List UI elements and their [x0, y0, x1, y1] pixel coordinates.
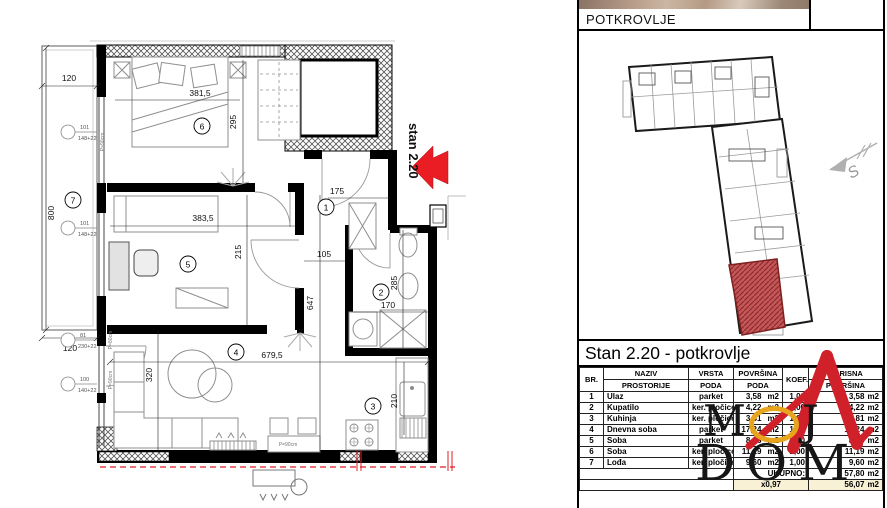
reduced-total-row: x0,97 56,07m2: [580, 480, 883, 491]
table-row: 3 Kuhinja ker. pločice 3,81m2 1,00 3,81m…: [580, 414, 883, 425]
floor-title: POTKROVLJE: [579, 9, 809, 29]
col-header-vrsta2: PODA: [689, 380, 734, 392]
room-number-7: 7: [71, 196, 76, 206]
dim-room5-width: 383,5: [192, 213, 214, 223]
table-header-row2: PROSTORIJE PODA PODA POVRŠINA: [580, 380, 883, 392]
cell-korisna: 9,60m2: [809, 458, 883, 469]
dim-bedroom-depth: 295: [228, 115, 238, 129]
dim-living-depth: 320: [144, 368, 154, 382]
cell-korisna: 17,24m2: [809, 425, 883, 436]
table-row: 1 Ulaz parket 3,58m2 1,00 3,58m2: [580, 392, 883, 403]
cell-povrsina: 17,24m2: [734, 425, 783, 436]
total-row: UKUPNO: 57,80m2: [580, 469, 883, 480]
cell-korisna: 4,22m2: [809, 403, 883, 414]
room-number-1: 1: [324, 203, 329, 213]
dim-entry-width: 175: [330, 186, 344, 196]
total-label: UKUPNO:: [734, 469, 809, 480]
building-outline: [623, 57, 812, 335]
dim-loggia-width-top: 120: [62, 73, 76, 83]
window-tag-size: 148+22: [78, 232, 97, 238]
table-row: 5 Soba parket 8,16m2 1,00 8,16m2: [580, 436, 883, 447]
col-header-naziv: NAZIV: [604, 368, 689, 380]
reduced-value: 56,07m2: [809, 480, 883, 491]
dim-hall-depth: 215: [233, 245, 243, 259]
cell-povrsina: 11,19m2: [734, 447, 783, 458]
key-plan-svg: S: [579, 31, 883, 339]
room-number-4: 4: [234, 348, 239, 358]
window-tag-code: 81: [80, 333, 86, 339]
building-key-plan: S: [579, 31, 883, 341]
cell-vrsta: ker. pločice: [689, 447, 734, 458]
door-label: P=90cm: [108, 371, 114, 389]
building-photo: [579, 0, 809, 9]
col-header-br: BR.: [580, 368, 604, 392]
cell-korisna: 8,16m2: [809, 436, 883, 447]
cell-vrsta: ker. pločice: [689, 403, 734, 414]
highlighted-unit: [729, 259, 785, 335]
window-tags: 101 148+22 101 148+22 81 230+22 100 140+…: [61, 125, 97, 394]
col-header-povrsina: POVRŠINA: [734, 368, 783, 380]
window-tag-code: 101: [80, 221, 89, 227]
cell-koef: 1,00: [783, 403, 809, 414]
door-label: P=90cm: [279, 442, 297, 448]
cell-vrsta: ker. pločice: [689, 414, 734, 425]
cell-povrsina: 3,81m2: [734, 414, 783, 425]
reduction-label: x0,97: [734, 480, 809, 491]
cell-br: 2: [580, 403, 604, 414]
table-row: 6 Soba ker. pločice 11,19m2 1,00 11,19m2: [580, 447, 883, 458]
cell-br: 7: [580, 458, 604, 469]
dim-loggia-length: 800: [46, 206, 56, 220]
cell-vrsta: parket: [689, 392, 734, 403]
cell-naziv: Dnevna soba: [604, 425, 689, 436]
north-label: S: [845, 162, 863, 182]
unit-heading: Stan 2.20 - potkrovlje: [579, 341, 883, 367]
cell-korisna: 3,81m2: [809, 414, 883, 425]
dim-east-depth: 647: [305, 296, 315, 310]
col-header-vrsta: VRSTA: [689, 368, 734, 380]
cell-koef: 1,00: [783, 392, 809, 403]
loggia-outline: [42, 46, 97, 330]
window-tag-size: 140+22: [78, 388, 97, 394]
dim-bath-width: 170: [381, 300, 395, 310]
cell-naziv: Soba: [604, 447, 689, 458]
cell-koef: 1,00: [783, 414, 809, 425]
north-arrow-icon: S: [829, 143, 877, 183]
cell-korisna: 3,58m2: [809, 392, 883, 403]
col-header-naziv2: PROSTORIJE: [604, 380, 689, 392]
dim-bedroom-width: 381,5: [189, 88, 211, 98]
empty-cell: [580, 480, 734, 491]
cell-br: 4: [580, 425, 604, 436]
cell-koef: 1,00: [783, 436, 809, 447]
panel-header-left: POTKROVLJE: [579, 0, 809, 29]
cell-naziv: Soba: [604, 436, 689, 447]
col-header-povrsina2: PODA: [734, 380, 783, 392]
cell-br: 5: [580, 436, 604, 447]
empty-cell: [580, 469, 734, 480]
cell-vrsta: ker. pločice: [689, 458, 734, 469]
room-schedule-table: BR. NAZIV VRSTA POVRŠINA KOEF. KORISNA P…: [579, 367, 883, 491]
unit-label: stan 2.20: [406, 123, 421, 179]
cell-naziv: Ulaz: [604, 392, 689, 403]
dim-hall-width: 105: [317, 249, 331, 259]
room-number-2: 2: [379, 288, 384, 298]
window-tag-code: 100: [80, 377, 89, 383]
panel-header: POTKROVLJE: [579, 0, 883, 31]
table-row: 2 Kupatilo ker. pločice 4,22m2 1,00 4,22…: [580, 403, 883, 414]
cell-br: 1: [580, 392, 604, 403]
table-header-row: BR. NAZIV VRSTA POVRŠINA KOEF. KORISNA: [580, 368, 883, 380]
window-tag-size: 148+22: [78, 136, 97, 142]
dim-living-width: 679,5: [261, 350, 283, 360]
col-header-koef: KOEF.: [783, 368, 809, 392]
ac-unit: [253, 470, 307, 500]
cell-naziv: Kuhinja: [604, 414, 689, 425]
cell-naziv: Lođa: [604, 458, 689, 469]
col-header-korisna2: POVRŠINA: [809, 380, 883, 392]
window-tag-size: 230+22: [78, 344, 97, 350]
cell-koef: 1,00: [783, 425, 809, 436]
window-tag-code: 101: [80, 125, 89, 131]
room-number-5: 5: [186, 260, 191, 270]
cell-povrsina: 3,58m2: [734, 392, 783, 403]
cell-koef: 1,00: [783, 458, 809, 469]
drawing-sheet: 120 800 381,5 295 383,5 215 175 105 647 …: [0, 0, 887, 508]
door-label: P=80cm: [108, 331, 114, 349]
table-row: 7 Lođa ker. pločice 9,60m2 1,00 9,60m2: [580, 458, 883, 469]
cell-povrsina: 8,16m2: [734, 436, 783, 447]
panel-header-cell: [809, 0, 883, 29]
cell-vrsta: parket: [689, 436, 734, 447]
cell-korisna: 11,19m2: [809, 447, 883, 458]
cell-br: 6: [580, 447, 604, 458]
dim-kitchen-depth: 210: [389, 394, 399, 408]
cell-vrsta: parket: [689, 425, 734, 436]
room-number-6: 6: [200, 122, 205, 132]
apartment-floor-plan: 120 800 381,5 295 383,5 215 175 105 647 …: [0, 0, 578, 508]
door-label: P=90cm: [100, 133, 106, 151]
cell-naziv: Kupatilo: [604, 403, 689, 414]
table-row: 4 Dnevna soba parket 17,24m2 1,00 17,24m…: [580, 425, 883, 436]
cell-koef: 1,00: [783, 447, 809, 458]
cell-br: 3: [580, 414, 604, 425]
cell-povrsina: 9,60m2: [734, 458, 783, 469]
col-header-korisna: KORISNA: [809, 368, 883, 380]
dim-bath-depth: 285: [389, 276, 399, 290]
cell-povrsina: 4,22m2: [734, 403, 783, 414]
room-number-3: 3: [371, 402, 376, 412]
title-block-panel: POTKROVLJE S: [577, 0, 885, 508]
total-value: 57,80m2: [809, 469, 883, 480]
